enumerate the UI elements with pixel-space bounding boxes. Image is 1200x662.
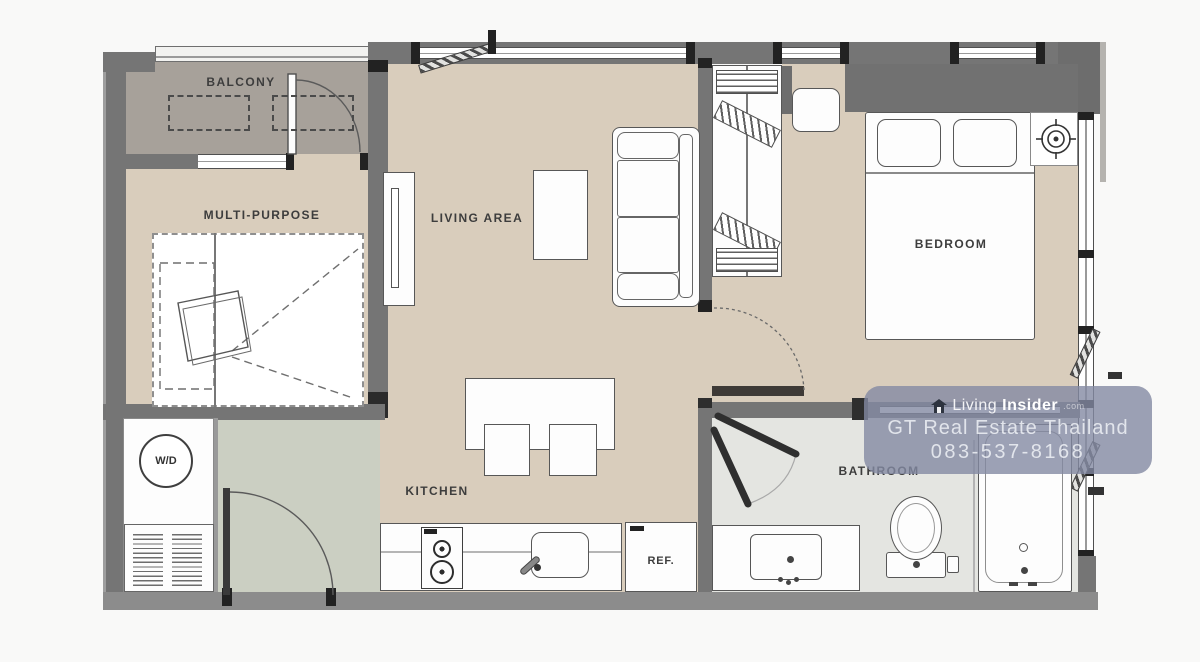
- multi-purpose-label: MULTI-PURPOSE: [204, 208, 321, 222]
- sofa-back: [679, 134, 693, 298]
- sink-faucet: [787, 556, 794, 563]
- wall-cap: [698, 58, 712, 68]
- balcony-planter: [272, 95, 354, 131]
- multipurpose-balcony-window: [198, 154, 286, 169]
- kitchen-faucet-base: [534, 564, 541, 571]
- bed-sheet-line: [866, 172, 1034, 174]
- wall-wardrobe-bedroom: [782, 66, 792, 114]
- stove-burner: [430, 560, 454, 584]
- livinginsider-logo-icon: [931, 399, 947, 413]
- floor-plan-image: BALCONY MULTI-PURPOSE LIVING AREA BEDROO…: [0, 0, 1200, 662]
- sofa-cushion: [617, 160, 679, 217]
- balcony-door-opening-floor: [294, 154, 360, 169]
- sofa-armrest: [617, 273, 679, 300]
- washer-dryer: W/D: [139, 434, 193, 488]
- bathtub-fitting: [1009, 582, 1018, 586]
- watermark-brand-line: LivingInsider.com: [931, 397, 1084, 415]
- toilet-bowl: [890, 496, 942, 560]
- tv-console: [383, 172, 415, 306]
- stove-control: [424, 529, 437, 534]
- watermark-brand-word1: Living: [952, 397, 997, 415]
- balcony-railing: [155, 46, 389, 62]
- sofa-armrest: [617, 132, 679, 159]
- living-area-label: LIVING AREA: [431, 211, 523, 225]
- wall-cap: [368, 60, 388, 72]
- balcony-wall-segment: [123, 154, 198, 169]
- tv: [391, 188, 399, 288]
- wardrobe-shelf-item: [716, 248, 778, 272]
- balcony-planter: [168, 95, 250, 131]
- awning-window-hinge: [488, 30, 496, 54]
- toilet-spray: [947, 556, 959, 573]
- watermark-brand-suffix: .com: [1063, 401, 1085, 411]
- window-jamb: [411, 42, 420, 64]
- coffee-table: [533, 170, 588, 260]
- kitchen-sink: [531, 532, 589, 578]
- balcony-railing-line: [156, 56, 388, 58]
- watermark-company: GT Real Estate Thailand: [887, 417, 1128, 440]
- entry-door: [222, 484, 338, 600]
- window-jamb: [840, 42, 849, 64]
- wall-right-outer-edge: [1100, 42, 1106, 182]
- bedroom-label: BEDROOM: [915, 237, 987, 251]
- kitchen-label: KITCHEN: [405, 484, 468, 498]
- stove-burner: [433, 540, 451, 558]
- bathtub-fitting: [1028, 582, 1037, 586]
- window-jamb: [1078, 112, 1094, 120]
- window-jamb: [686, 42, 695, 64]
- sink-fitting: [778, 577, 783, 582]
- bedroom-left-window: [782, 47, 840, 59]
- linen-shelf: [124, 524, 214, 592]
- bedroom-top-window: [958, 47, 1036, 59]
- refrigerator-mark: [630, 526, 644, 531]
- sink-fitting: [794, 577, 799, 582]
- foldaway-bed-projection: [152, 233, 364, 407]
- nightstand: [792, 88, 840, 132]
- window-jamb: [1078, 250, 1094, 258]
- awning-window-stub: [1088, 487, 1104, 495]
- bathroom-folding-door: [706, 402, 806, 512]
- window-jamb: [1036, 42, 1045, 64]
- bedroom-door: [704, 298, 808, 402]
- pillow: [877, 119, 941, 167]
- bathroom-sink: [750, 534, 822, 580]
- dining-chair: [484, 424, 530, 476]
- window-jamb: [773, 42, 782, 64]
- wardrobe-shelf-item: [716, 70, 778, 94]
- window-jamb: [950, 42, 959, 64]
- bedroom-top-bulkhead: [845, 64, 1078, 112]
- wall-top-left-stub: [103, 52, 155, 72]
- balcony-label: BALCONY: [206, 75, 275, 89]
- bathtub-drain: [1019, 543, 1028, 552]
- watermark-brand-word2: Insider: [1002, 397, 1058, 415]
- toilet-bowl-inner: [897, 503, 935, 553]
- awning-window-stub: [1108, 372, 1122, 379]
- washer-dryer-label: W/D: [155, 455, 176, 467]
- bathtub-faucet: [1021, 567, 1028, 574]
- toilet-flush: [913, 561, 920, 568]
- wall-living-wardrobe: [698, 66, 712, 312]
- pillow: [953, 119, 1017, 167]
- shelf-items: [133, 531, 163, 586]
- dining-chair: [549, 424, 597, 476]
- ceiling-fixture-icon: [1036, 119, 1076, 159]
- watermark-badge: LivingInsider.com GT Real Estate Thailan…: [864, 386, 1152, 474]
- refrigerator: REF.: [625, 522, 697, 592]
- watermark-phone: 083-537-8168: [931, 441, 1086, 464]
- sofa-cushion: [617, 217, 679, 273]
- sink-fitting: [786, 580, 791, 585]
- sofa: [612, 127, 700, 307]
- refrigerator-label: REF.: [647, 555, 674, 567]
- shelf-items: [172, 531, 202, 586]
